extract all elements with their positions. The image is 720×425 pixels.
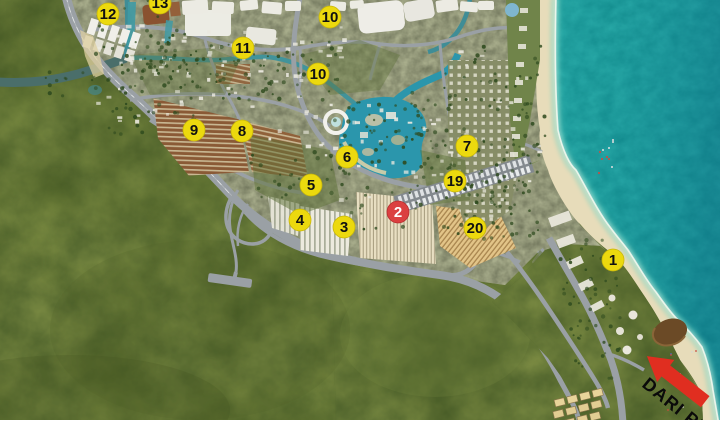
svg-text:10: 10 xyxy=(322,9,339,26)
svg-text:13: 13 xyxy=(152,0,169,12)
svg-text:1: 1 xyxy=(609,252,617,269)
svg-text:12: 12 xyxy=(100,6,117,23)
svg-text:3: 3 xyxy=(340,219,348,236)
svg-text:4: 4 xyxy=(296,212,305,229)
svg-text:20: 20 xyxy=(467,220,484,237)
svg-text:6: 6 xyxy=(343,149,351,166)
svg-text:9: 9 xyxy=(190,122,198,139)
svg-text:19: 19 xyxy=(447,173,464,190)
svg-text:2: 2 xyxy=(394,204,402,221)
svg-text:7: 7 xyxy=(463,138,471,155)
svg-text:10: 10 xyxy=(310,66,327,83)
svg-text:5: 5 xyxy=(307,177,315,194)
svg-text:8: 8 xyxy=(238,123,246,140)
svg-text:11: 11 xyxy=(235,40,251,57)
